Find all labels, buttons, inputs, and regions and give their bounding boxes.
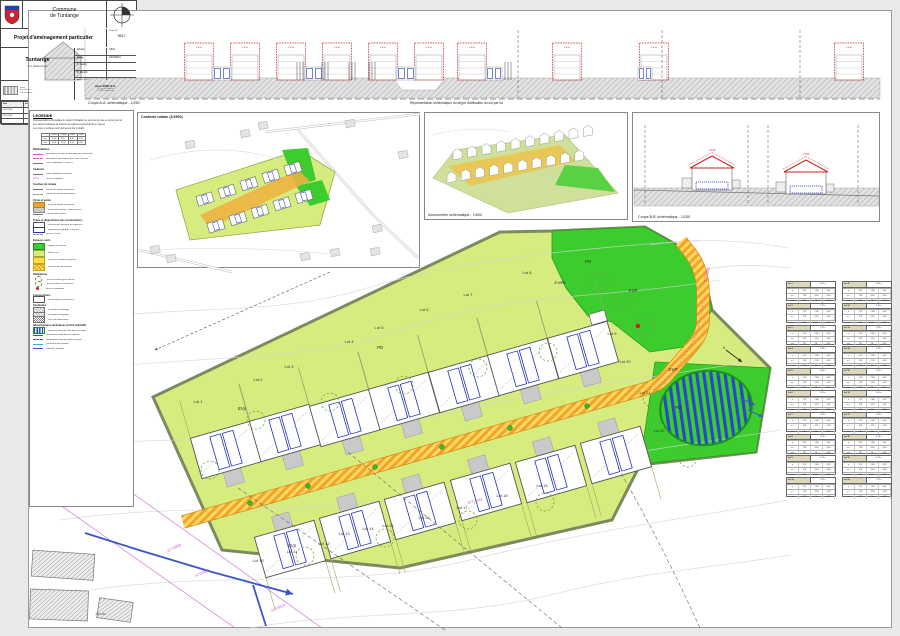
lot-label: Lot 3: [285, 364, 295, 369]
legend-row: courbe de niveau secondaire: [33, 192, 130, 197]
legend-section: Infrastructures techniques (à titre indi…: [33, 324, 130, 351]
legend-section: Délimitationsdélimitation du plan d'amén…: [33, 148, 130, 166]
coupe-bb-caption: Coupe B-B' schématique - 1/250: [638, 215, 690, 219]
locality-name: Tuntange " Um Haldescheed ": [1, 48, 75, 80]
lot-label: Lot 10: [252, 558, 264, 563]
legend-section: Courbes de niveaucourbe de niveau maître…: [33, 183, 130, 196]
jardin-label: Jardin: [95, 611, 106, 616]
ln-blue-icon: [33, 335, 43, 336]
legend-row: collecteur existant: [33, 347, 130, 352]
lot-label: Lot 14: [362, 526, 374, 531]
ln-mag-icon: [33, 154, 43, 155]
legend-section: Constructionsbâti existant (à conserver): [33, 294, 130, 302]
axono-house: [575, 150, 584, 161]
lot-table-label: Lot 5: [787, 369, 811, 374]
lot-table-label: Lot 2: [787, 304, 811, 309]
lot-data-table: Lot 13,05 aa2,97CUS0,45s.c.178COS0,28s.s…: [786, 281, 836, 301]
garage-connector: [638, 67, 652, 80]
zone-label: EVP: [669, 367, 678, 372]
existing-house: [370, 247, 380, 256]
legend-section: Espaces vertsespace vert publicjardin pr…: [33, 239, 130, 271]
zone-label: PD: [675, 405, 682, 410]
svg-text:≤ 8,50: ≤ 8,50: [564, 46, 571, 49]
lot-label: Lot 16: [418, 515, 430, 520]
logo-mark-icon: [3, 86, 18, 95]
existing-house: [240, 129, 250, 138]
bx-check-icon: [33, 316, 45, 323]
lot-data-table: Lot 102,90 aa2,97CUS0,45s.c.178COS0,28s.…: [786, 477, 836, 497]
lot-table-label: Lot 17: [843, 413, 867, 418]
lot-table-label: Lot 15: [843, 369, 867, 374]
lot-label: Lot 4: [345, 339, 355, 344]
ln-gray-icon: [33, 214, 43, 215]
lot-label: Lot 17: [456, 505, 468, 510]
existing-house: [345, 119, 355, 128]
lot-label: Lot 2: [254, 377, 264, 382]
street-tree-dot: [508, 426, 513, 431]
section-house: ≤ 8,50: [835, 43, 864, 80]
lot-label: Lot 21: [639, 390, 651, 395]
bx-blue-icon: [33, 227, 45, 233]
svg-text:≤ 8,50: ≤ 8,50: [651, 46, 658, 49]
axono-house: [511, 138, 520, 149]
plan-sheet-page: { "palette":{"chartreuse":"#d7ec7e","gre…: [0, 0, 900, 636]
zone-label: EVp: [288, 543, 297, 548]
axono-house: [569, 128, 578, 139]
legend-intro-line: Les cotes et surfaces sont données à tit…: [33, 128, 130, 131]
lot-label: Lot 15: [382, 523, 394, 528]
contexte-caption: Contexte urbain (1/2500): [141, 115, 183, 119]
lot-data-table: Lot 172,99 aa2,97CUS0,45s.c.178COS0,28s.…: [842, 412, 892, 432]
axono-house: [497, 141, 506, 152]
lot-label: Lot 18: [496, 493, 508, 498]
project-number: Projet N° 9617: [107, 29, 136, 47]
legend-row: zone non aedificandi: [33, 317, 130, 322]
plan-info-row: Echelle1/500: [75, 48, 136, 56]
parcel-number: 677/3910: [271, 603, 286, 613]
axono-house: [584, 125, 593, 136]
lot-data-table: Lot 83,02 aa2,97CUS0,45s.c.178COS0,28s.s…: [786, 434, 836, 454]
legend-section: Cadastrelimite cadastrale existante677/1…: [33, 168, 130, 181]
legend-row: zone d'habitation 1 [HAB-1]: [33, 161, 130, 166]
svg-text:≤ 8,50: ≤ 8,50: [380, 46, 387, 49]
plan-info-row: Plan N° (rv)1: [75, 78, 136, 80]
plan-info-row: K. Jacoby: [75, 63, 136, 71]
contexte-drawing: [139, 114, 420, 272]
garage-connector: [486, 67, 502, 80]
ln-cyan-icon: [33, 344, 43, 345]
lot-label: Lot 19: [536, 483, 548, 488]
ln-gray-d-icon: [33, 234, 43, 235]
svg-text:≤ 8,50: ≤ 8,50: [846, 46, 853, 49]
zone-label: PD: [377, 345, 384, 350]
bx-blue-h-icon: [33, 327, 45, 334]
svg-text:≤ 8,50: ≤ 8,50: [334, 46, 341, 49]
lot-data-table: Lot 163,05 aa2,97CUS0,45s.c.178COS0,28s.…: [842, 390, 892, 410]
lot-data-table: Lot 205,12 aa2,97CUS0,45s.c.178COS0,28s.…: [842, 477, 892, 497]
north-symbol-cell: [107, 1, 136, 28]
street-tree-dot: [248, 501, 253, 506]
lot-table-label: Lot 1: [787, 282, 811, 287]
architect-logo: atelierd'architectureet d'urbanisme: [1, 81, 75, 100]
parcel-number: 677/2889: [167, 543, 182, 553]
legend-row: bâti existant (à conserver): [33, 297, 130, 302]
lot-table-label: Lot 12: [843, 304, 867, 309]
section-house: ≤ 8,50: [277, 43, 306, 80]
svg-text:≤ 8,50: ≤ 8,50: [242, 46, 249, 49]
legend-row: espace vert public: [33, 243, 130, 250]
zone-label: EVP: [629, 288, 638, 293]
lot-label: Lot 20: [619, 359, 631, 364]
lot-table-label: Lot 7: [787, 413, 811, 418]
lot-data-table: Lot 33,12 aa2,97CUS0,45s.c.178COS0,28s.s…: [786, 325, 836, 345]
legend-row: recul sur limite: [33, 232, 130, 237]
axono-drawing: [432, 125, 618, 213]
garage-connector: [213, 67, 231, 80]
legend-intro-line: Les valeurs indiquées se réfèrent au règ…: [33, 124, 130, 127]
svg-text:≤ 9,50: ≤ 9,50: [803, 153, 810, 156]
legend-panel: LEGENDE Représentation schématique du de…: [29, 110, 134, 507]
compass-icon: [107, 1, 136, 28]
lot-data-table: Lot 53,40 aa2,97CUS0,45s.c.178COS0,28s.s…: [786, 368, 836, 388]
lot-data-table: Lot 73,18 aa2,97CUS0,45s.c.178COS0,28s.s…: [786, 412, 836, 432]
ln-mag-d-icon: [33, 158, 43, 159]
plan-info-rows: Echelle1/500Date14/07/2014K. JacobyR. Me…: [75, 48, 136, 80]
svg-text:≤ 9,50: ≤ 9,50: [709, 149, 716, 152]
lot-table-label: Lot 6: [787, 391, 811, 396]
ln-blue-icon: [33, 348, 43, 349]
street-tree-dot: [306, 484, 311, 489]
bb-section-house: ≤ 9,50: [682, 149, 740, 190]
existing-house: [372, 224, 382, 233]
lot-table-label: Lot 9: [787, 456, 811, 461]
lot-table-label: Lot 16: [843, 391, 867, 396]
street-tree-dot: [373, 465, 378, 470]
axono-house: [540, 133, 549, 144]
svg-text:≤ 8,50: ≤ 8,50: [196, 46, 203, 49]
lot-data-table: Lot 62,95 aa2,97CUS0,45s.c.178COS0,28s.s…: [786, 390, 836, 410]
section-house: ≤ 8,50: [458, 43, 487, 80]
lot-label: Lot 22: [653, 428, 665, 433]
lot-data-table: Lot 152,87 aa2,97CUS0,45s.c.178COS0,28s.…: [842, 368, 892, 388]
axono-house: [526, 136, 535, 147]
lot-table-label: Lot 3: [787, 326, 811, 331]
lot-data-table: Lot 143,22 aa2,97CUS0,45s.c.178COS0,28s.…: [842, 346, 892, 366]
section-house: ≤ 8,50: [553, 43, 582, 80]
existing-house: [398, 150, 408, 159]
lot-label: Lot 11: [287, 549, 299, 554]
commune-name: Communede Tuntange: [23, 1, 107, 28]
section-house: ≤ 8,50: [185, 43, 214, 80]
axono-house: [555, 131, 564, 142]
lot-label: Lot 5: [375, 325, 385, 330]
representation-caption: Représentation schématique du degré d'ut…: [410, 101, 503, 105]
lot-data-table: Lot 22,97 aa2,97CUS0,45s.c.178COS0,28s.s…: [786, 303, 836, 323]
lot-label: Lot 12: [318, 541, 330, 546]
lot-table-label: Lot 10: [787, 478, 811, 483]
site-plan: K Jardin Lot 1Lot 2Lot 3Lot 4Lot 5Lot 6L…: [28, 222, 793, 630]
lot-data-tables: Lot 13,05 aa2,97CUS0,45s.c.178COS0,28s.s…: [786, 281, 892, 499]
bb-section-house: ≤ 9,50: [776, 153, 834, 194]
ln-gray-icon: [33, 174, 43, 175]
lot-data-table: Lot 42,88 aa2,97CUS0,45s.c.178COS0,28s.s…: [786, 346, 836, 366]
lot-table-label: Lot 14: [843, 347, 867, 352]
project-title: Projet d'aménagement particulier: [1, 29, 107, 47]
lot-data-table: Lot 94,25 aa2,97CUS0,45s.c.178COS0,28s.s…: [786, 455, 836, 475]
bx-white-icon: [33, 296, 45, 303]
axono-caption: Axonométrie schématique - 1/500: [428, 213, 482, 217]
legend-section: Plantationsarbre à haute tige à plantera…: [33, 273, 130, 291]
lot-label: Lot 1: [194, 399, 204, 404]
legend-intro-line: Représentation schématique du degré d'ut…: [33, 120, 130, 123]
legend-row: cheminement piéton: [33, 212, 130, 217]
lot-label: Lot 7: [464, 292, 474, 297]
legend-row: accès privé carrossable: [33, 264, 130, 271]
lot-data-table: Lot 193,41 aa2,97CUS0,45s.c.178COS0,28s.…: [842, 455, 892, 475]
lot-label: Lot 9: [608, 331, 618, 336]
legend-row: zone de circulation piétonne: [33, 257, 130, 264]
lot-label: Lot 6: [420, 307, 430, 312]
section-house: ≤ 8,50: [323, 43, 352, 80]
coupe-aa-caption: Coupe A-A' schématique - 1/250: [88, 101, 140, 105]
zone-label: EVp: [238, 406, 247, 411]
street-tree-dot: [585, 404, 590, 409]
legend-row: 677/1numéro cadastral: [33, 176, 130, 181]
ground-band: [85, 78, 880, 98]
existing-house: [185, 140, 195, 149]
zone-label: z-vert: [554, 280, 567, 285]
bx-yellow-h-icon: [33, 264, 45, 272]
plan-info-row: Date14/07/2014: [75, 56, 136, 64]
legend-row: jardin privé: [33, 250, 130, 257]
lot-data-table: Lot 123,10 aa2,97CUS0,45s.c.178COS0,28s.…: [842, 303, 892, 323]
svg-text:≤ 8,50: ≤ 8,50: [426, 46, 433, 49]
dot-red-icon: [36, 287, 39, 290]
ln-gray-icon: [33, 163, 43, 164]
ln-blue-d-icon: [33, 339, 43, 340]
lot-table-label: Lot 4: [787, 347, 811, 352]
lot-table-label: Lot 20: [843, 478, 867, 483]
panels-drawings: ≤ 9,50≤ 9,50: [28, 110, 893, 272]
legend-section: Types et dispositions des constructionsc…: [33, 219, 130, 237]
commune-crest-icon: [1, 1, 23, 28]
ln-gray-d-icon: [33, 194, 43, 195]
bx-gray-icon: [33, 207, 45, 213]
existing-house: [330, 248, 340, 257]
garage-connector: [305, 67, 323, 80]
legend-title: LEGENDE: [33, 113, 130, 118]
legend-section: Servitudesservitude de passageservitude …: [33, 304, 130, 322]
svg-text:≤ 8,50: ≤ 8,50: [469, 46, 476, 49]
crest-cell: [1, 1, 23, 28]
lot-table-label: Lot 11: [843, 282, 867, 287]
firm-info: Arco 2000 S.A. 12, rue de l'Industrie L-…: [75, 81, 136, 100]
lot-section-houses: ≤ 8,50≤ 8,50≤ 8,50≤ 8,50≤ 8,50≤ 8,50≤ 8,…: [185, 43, 864, 80]
section-house: ≤ 8,50: [415, 43, 444, 80]
lot-label: Lot 13: [338, 531, 350, 536]
section-house: ≤ 8,50: [369, 43, 398, 80]
legend-intro: Représentation schématique du degré d'ut…: [33, 120, 130, 131]
lot-table-label: Lot 19: [843, 456, 867, 461]
existing-house: [258, 121, 268, 130]
lot-data-table: Lot 183,14 aa2,97CUS0,45s.c.178COS0,28s.…: [842, 434, 892, 454]
legend-row: arbre remarquable: [33, 286, 130, 291]
plan-info-row: R. Mersch: [75, 71, 136, 79]
coupe-bb-drawing: ≤ 9,50≤ 9,50: [634, 125, 879, 206]
lot-data-table: Lot 112,86 aa2,97CUS0,45s.c.178COS0,28s.…: [842, 281, 892, 301]
txt-mag-icon: 677/1: [33, 177, 43, 180]
lot-table-label: Lot 13: [843, 326, 867, 331]
ln-gray-icon: [33, 189, 43, 190]
remarkable-tree-dot: [636, 324, 641, 329]
lot-table-label: Lot 18: [843, 435, 867, 440]
street-tree-dot: [440, 445, 445, 450]
lot-table-label: Lot 8: [787, 435, 811, 440]
existing-house: [300, 252, 310, 261]
svg-text:≤ 8,50: ≤ 8,50: [288, 46, 295, 49]
existing-house: [166, 254, 176, 263]
legend-table: L maxP maxH faît.CUSmin.12,009,506,500,3…: [41, 133, 86, 145]
garage-connector: [397, 67, 415, 80]
lot-data-table: Lot 132,94 aa2,97CUS0,45s.c.178COS0,28s.…: [842, 325, 892, 345]
legend-section: Voirie et accèsvoirie de desserte projet…: [33, 199, 130, 217]
section-house: ≤ 8,50: [231, 43, 260, 80]
